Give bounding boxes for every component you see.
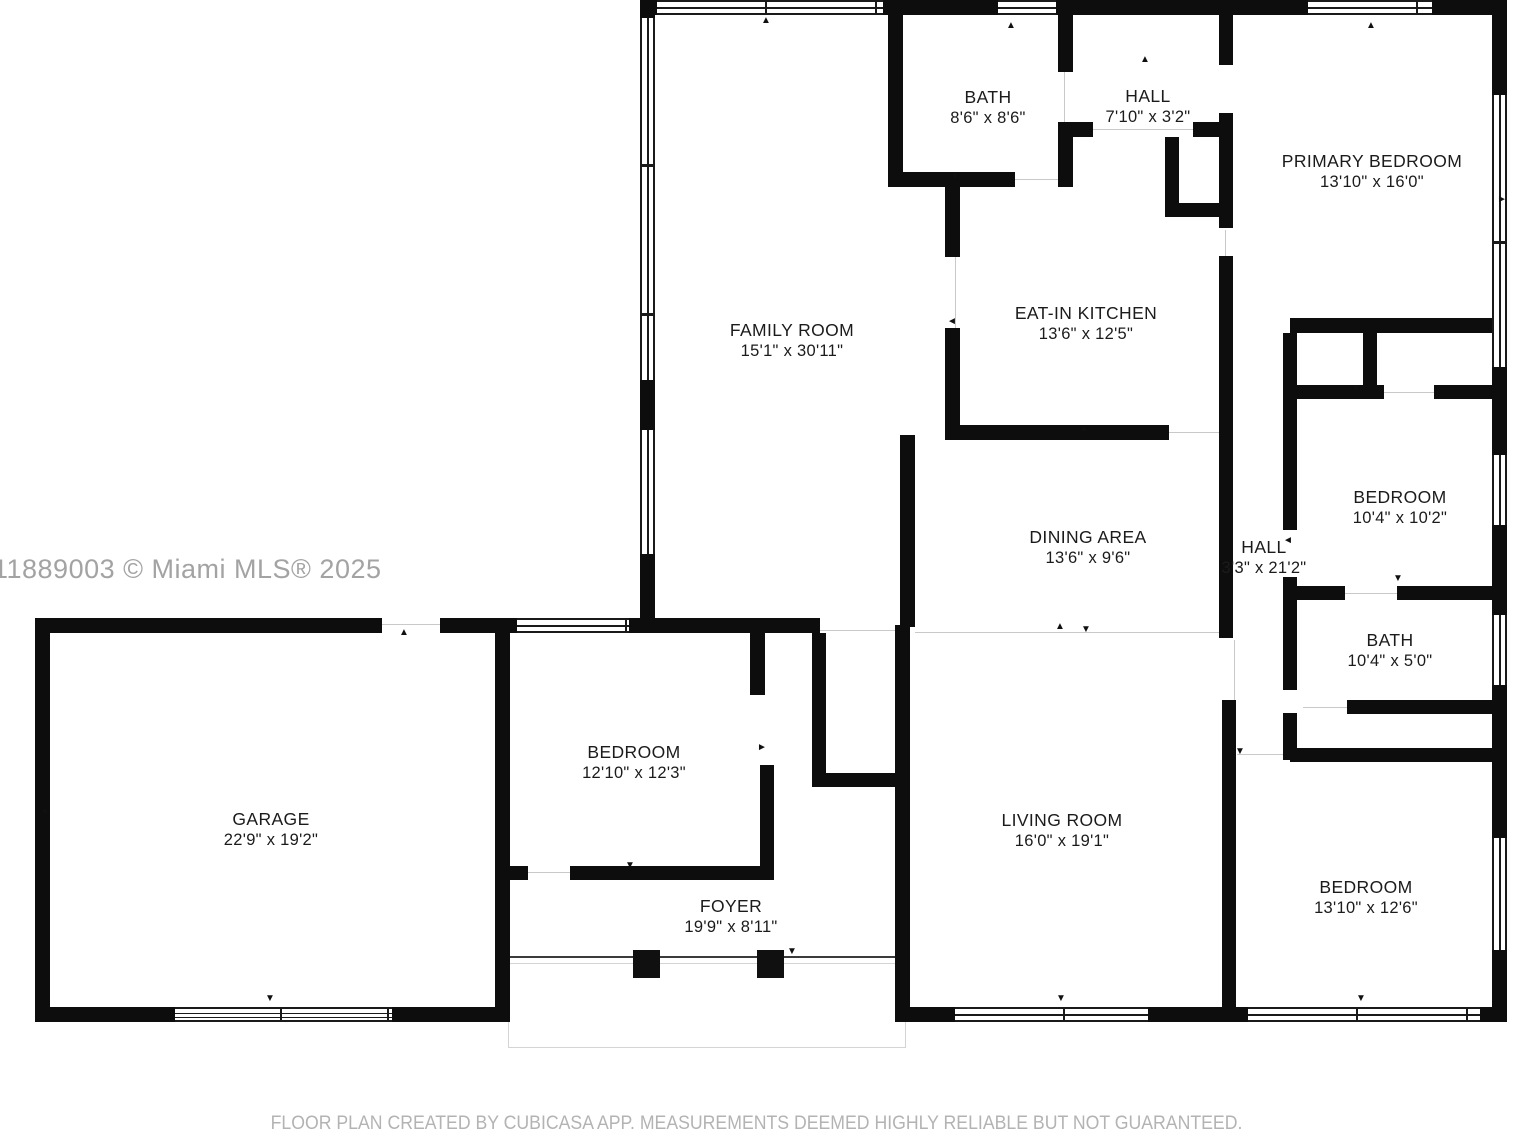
door-arrow-icon: ▲ (1079, 424, 1089, 434)
room-label-bedroom-right: BEDROOM10'4" x 10'2" (1353, 487, 1447, 529)
wall-segment (510, 866, 528, 880)
room-label-eat-in-kitchen: EAT-IN KITCHEN13'6" x 12'5" (1015, 303, 1157, 345)
open-boundary-line (820, 630, 895, 631)
door-arrow-icon: ▲ (1140, 55, 1150, 65)
window (1492, 615, 1507, 685)
wall-segment (1290, 748, 1507, 762)
window (1492, 838, 1507, 950)
window (657, 0, 883, 15)
open-boundary-line (382, 624, 440, 625)
window (517, 618, 629, 633)
room-label-garage: GARAGE22'9" x 19'2" (224, 809, 318, 851)
room-dimensions: 12'10" x 12'3" (582, 763, 686, 784)
room-name: FAMILY ROOM (730, 320, 854, 341)
door-arrow-icon: ► (757, 743, 767, 753)
open-boundary-line (1090, 129, 1193, 130)
door-arrow-icon: ▼ (1356, 994, 1366, 1004)
wall-segment (888, 15, 903, 187)
porch-post (633, 950, 660, 978)
wall-segment (1347, 700, 1507, 714)
room-label-hall-top: HALL7'10" x 3'2" (1106, 86, 1191, 128)
room-label-foyer: FOYER19'9" x 8'11" (684, 896, 777, 938)
room-label-living-room: LIVING ROOM16'0" x 19'1" (1001, 810, 1122, 852)
wall-segment (1219, 333, 1233, 638)
open-boundary-line (1167, 432, 1219, 433)
wall-segment (1219, 15, 1233, 65)
porch-post (757, 950, 784, 978)
room-name: GARAGE (224, 809, 318, 830)
door-arrow-icon: ◄ (39, 807, 49, 817)
room-dimensions: 22'9" x 19'2" (224, 830, 318, 851)
room-label-bedroom-bottom-right: BEDROOM13'10" x 12'6" (1314, 877, 1418, 919)
room-label-hall-right: HALL3'3" x 21'2" (1222, 537, 1307, 579)
door-arrow-icon: ► (1497, 195, 1507, 205)
door-arrow-icon: ▼ (1235, 747, 1245, 757)
door-arrow-icon: ▼ (1351, 384, 1361, 394)
wall-segment (895, 625, 910, 1022)
wall-segment (1219, 113, 1233, 228)
room-name: BEDROOM (1314, 877, 1418, 898)
door-arrow-icon: ▼ (1081, 625, 1091, 635)
door-arrow-icon: ◄ (947, 317, 957, 327)
room-dimensions: 13'6" x 9'6" (1029, 548, 1146, 569)
wall-segment (750, 633, 765, 695)
wall-segment (1283, 586, 1345, 600)
door-arrow-icon: ▲ (1366, 21, 1376, 31)
mls-watermark: 11889003 © Miami MLS® 2025 (0, 554, 382, 585)
wall-segment (1222, 700, 1236, 1007)
wall-segment (760, 765, 774, 880)
room-name: BEDROOM (1353, 487, 1447, 508)
window (1492, 455, 1507, 525)
wall-segment (35, 618, 50, 1022)
open-boundary-line (1384, 392, 1434, 393)
room-label-bath-right: BATH10'4" x 5'0" (1348, 630, 1433, 672)
door-arrow-icon: ▼ (950, 172, 960, 182)
room-name: HALL (1222, 537, 1307, 558)
room-name: BEDROOM (582, 742, 686, 763)
footer-disclaimer: FLOOR PLAN CREATED BY CUBICASA APP. MEAS… (53, 1113, 1460, 1134)
wall-segment (1283, 397, 1297, 530)
wall-segment (1290, 385, 1384, 399)
wall-segment (1290, 318, 1507, 333)
foyer-threshold-line (510, 956, 895, 958)
window (1248, 1007, 1480, 1022)
window (640, 18, 655, 380)
open-boundary-line (915, 632, 1219, 633)
door-arrow-icon: ▼ (625, 861, 635, 871)
window (640, 430, 655, 554)
room-dimensions: 3'3" x 21'2" (1222, 558, 1307, 579)
door-arrow-icon: ▲ (1055, 622, 1065, 632)
garage-door (175, 1007, 392, 1022)
room-dimensions: 19'9" x 8'11" (684, 917, 777, 938)
wall-segment (945, 328, 960, 435)
wall-segment (1058, 122, 1093, 137)
room-name: LIVING ROOM (1001, 810, 1122, 831)
wall-segment (1434, 385, 1507, 399)
wall-segment (945, 425, 1169, 440)
room-label-bedroom-middle: BEDROOM12'10" x 12'3" (582, 742, 686, 784)
door-arrow-icon: ▲ (399, 628, 409, 638)
room-dimensions: 8'6" x 8'6" (950, 108, 1025, 129)
wall-segment (812, 633, 826, 787)
wall-segment (1058, 15, 1073, 72)
room-name: HALL (1106, 86, 1191, 107)
open-boundary-line (1015, 179, 1058, 180)
wall-segment (1219, 256, 1233, 338)
door-arrow-icon: ▼ (1056, 994, 1066, 1004)
door-arrow-icon: ▼ (265, 994, 275, 1004)
window (1308, 0, 1432, 15)
open-boundary-line (1343, 593, 1397, 594)
entry-porch-outline (508, 963, 906, 1048)
door-arrow-icon: ▲ (1006, 21, 1016, 31)
wall-segment (945, 187, 960, 257)
open-boundary-line (1234, 640, 1235, 700)
room-dimensions: 15'1" x 30'11" (730, 341, 854, 362)
room-dimensions: 10'4" x 10'2" (1353, 508, 1447, 529)
window (998, 0, 1056, 15)
wall-segment (1397, 586, 1507, 600)
room-name: DINING AREA (1029, 527, 1146, 548)
wall-segment (630, 618, 820, 633)
door-arrow-icon: ▲ (761, 16, 771, 26)
room-name: PRIMARY BEDROOM (1282, 151, 1462, 172)
room-name: BATH (950, 87, 1025, 108)
wall-segment (495, 618, 510, 1022)
room-dimensions: 13'6" x 12'5" (1015, 324, 1157, 345)
room-label-bath-top: BATH8'6" x 8'6" (950, 87, 1025, 129)
room-name: FOYER (684, 896, 777, 917)
open-boundary-line (1225, 230, 1226, 256)
open-boundary-line (525, 872, 570, 873)
room-label-dining-area: DINING AREA13'6" x 9'6" (1029, 527, 1146, 569)
floor-plan: 11889003 © Miami MLS® 2025 FLOOR PLAN CR… (0, 0, 1513, 1134)
room-dimensions: 16'0" x 19'1" (1001, 831, 1122, 852)
room-label-family-room: FAMILY ROOM15'1" x 30'11" (730, 320, 854, 362)
room-dimensions: 10'4" x 5'0" (1348, 651, 1433, 672)
wall-segment (812, 773, 904, 787)
wall-segment (570, 866, 762, 880)
open-boundary-line (1303, 707, 1347, 708)
door-arrow-icon: ▼ (1393, 574, 1403, 584)
room-name: BATH (1348, 630, 1433, 651)
room-dimensions: 13'10" x 12'6" (1314, 898, 1418, 919)
room-name: EAT-IN KITCHEN (1015, 303, 1157, 324)
wall-segment (35, 618, 382, 633)
open-boundary-line (1064, 72, 1065, 128)
room-dimensions: 7'10" x 3'2" (1106, 107, 1191, 128)
window (1492, 95, 1507, 367)
wall-segment (900, 435, 915, 627)
window (955, 1007, 1148, 1022)
room-dimensions: 13'10" x 16'0" (1282, 172, 1462, 193)
room-label-primary-bedroom: PRIMARY BEDROOM13'10" x 16'0" (1282, 151, 1462, 193)
door-arrow-icon: ▼ (787, 947, 797, 957)
